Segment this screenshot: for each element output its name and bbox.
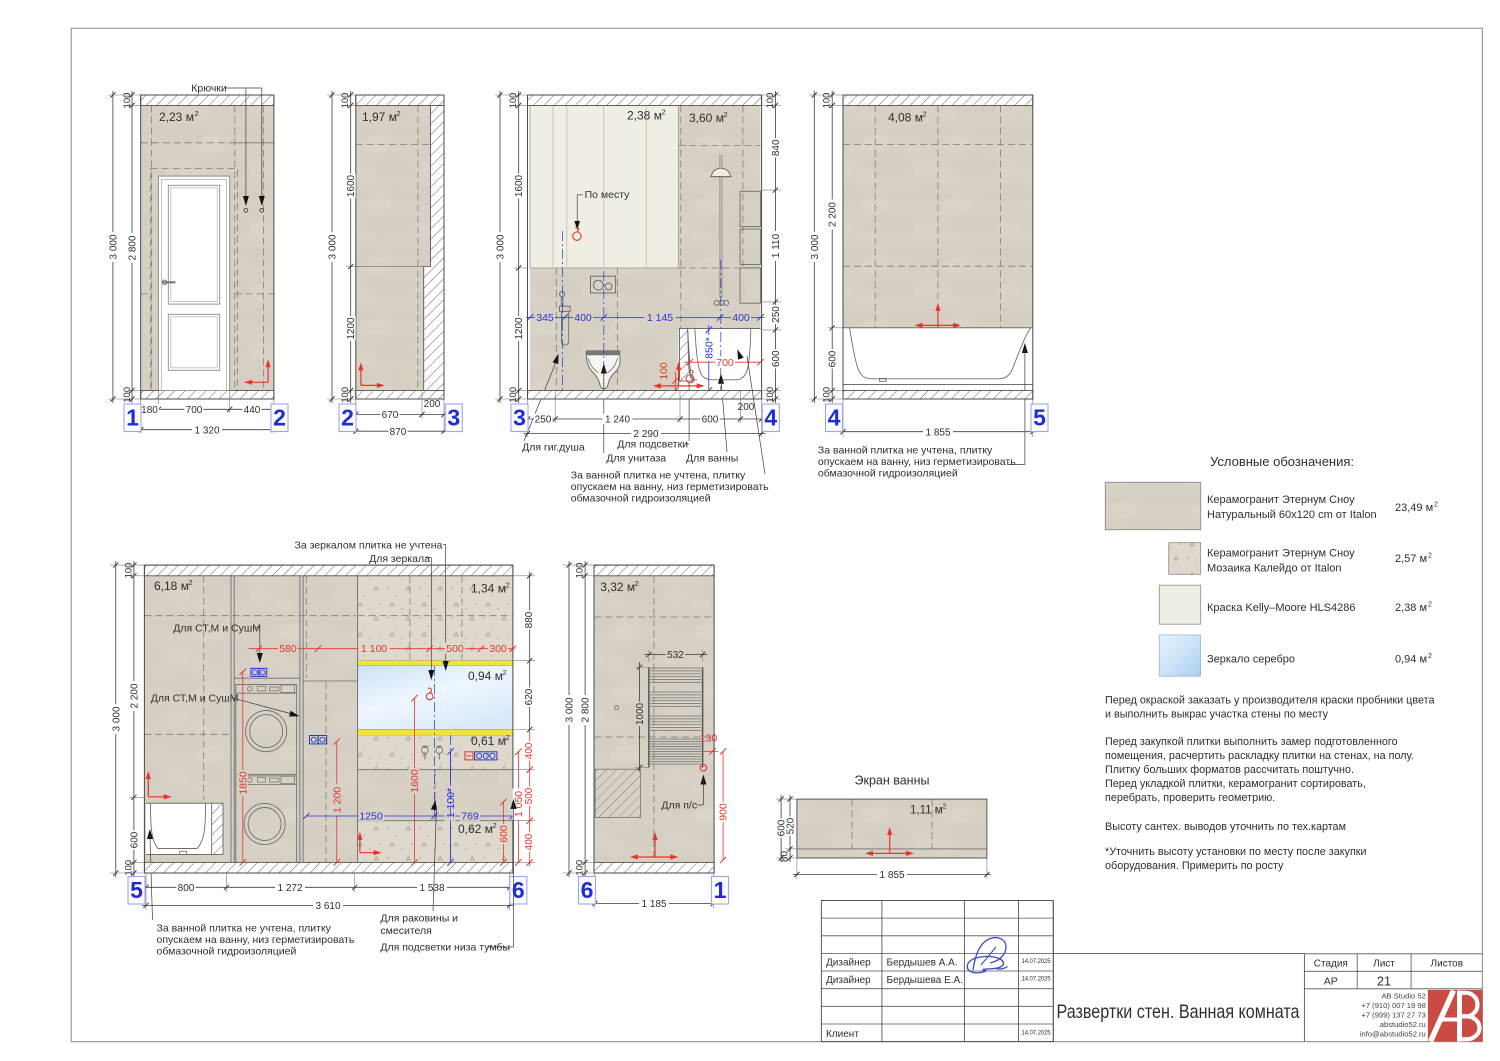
svg-text:1 272: 1 272	[277, 883, 302, 894]
svg-text:Мозаика Калейдо от Italon: Мозаика Калейдо от Italon	[1207, 563, 1342, 575]
svg-text:2 200: 2 200	[129, 683, 140, 708]
svg-text:За ванной плитка не учтена, п: За ванной плитка не учтена, плитку	[571, 470, 746, 482]
svg-text:840: 840	[771, 139, 782, 156]
svg-text:400: 400	[524, 833, 535, 850]
svg-text:перебрать, проверить геометрию: перебрать, проверить геометрию.	[1105, 792, 1275, 804]
svg-text:1600: 1600	[514, 174, 525, 197]
svg-text:0,62 м: 0,62 м	[458, 822, 493, 836]
svg-text:2: 2	[506, 733, 510, 742]
svg-text:2,23 м: 2,23 м	[159, 110, 194, 124]
svg-text:3,32 м: 3,32 м	[600, 580, 635, 594]
svg-text:1 240: 1 240	[605, 415, 630, 426]
svg-text:2: 2	[503, 668, 507, 677]
svg-text:Высоту сантех. выводов уточнит: Высоту сантех. выводов уточнить по тех.к…	[1105, 821, 1346, 833]
svg-text:0,61 м: 0,61 м	[471, 734, 506, 748]
svg-text:2: 2	[1428, 553, 1432, 560]
svg-text:580: 580	[279, 643, 297, 655]
svg-text:440: 440	[244, 405, 261, 416]
svg-text:1,11 м: 1,11 м	[910, 805, 943, 817]
svg-text:Дизайнер: Дизайнер	[826, 958, 871, 969]
svg-text:100: 100	[340, 387, 351, 403]
svg-text:100: 100	[822, 93, 833, 109]
svg-text:AB Studio 52: AB Studio 52	[1381, 992, 1425, 1001]
svg-text:3: 3	[513, 404, 526, 430]
svg-text:520: 520	[786, 817, 797, 834]
svg-text:345: 345	[536, 312, 554, 324]
svg-text:Для подсветки низа тумбы: Для подсветки низа тумбы	[380, 942, 510, 954]
svg-text:1600: 1600	[409, 769, 421, 793]
svg-text:2: 2	[635, 579, 639, 588]
svg-text:Клиент: Клиент	[826, 1029, 859, 1040]
svg-text:14.07.2025: 14.07.2025	[1021, 1030, 1051, 1036]
svg-text:23,49 м: 23,49 м	[1395, 502, 1433, 514]
svg-text:Для унитаза: Для унитаза	[606, 453, 666, 465]
svg-text:Зеркало серебро: Зеркало серебро	[1207, 654, 1295, 666]
svg-text:Краска Kelly–Moore HLS4286: Краска Kelly–Moore HLS4286	[1207, 602, 1355, 614]
svg-text:600: 600	[828, 350, 839, 367]
svg-text:300: 300	[489, 643, 507, 655]
svg-text:600: 600	[771, 350, 782, 367]
svg-text:Для п/с: Для п/с	[661, 800, 697, 812]
svg-text:2: 2	[397, 109, 401, 118]
svg-text:700: 700	[716, 357, 734, 369]
svg-text:Для раковины и: Для раковины и	[380, 913, 458, 925]
svg-text:2: 2	[724, 110, 728, 119]
svg-text:14.07.2025: 14.07.2025	[1021, 977, 1051, 983]
svg-text:600: 600	[129, 831, 140, 848]
svg-text:6: 6	[581, 877, 594, 903]
svg-text:2 800: 2 800	[581, 697, 592, 722]
svg-text:880: 880	[524, 611, 535, 628]
svg-text:Бердышева Е.А.: Бердышева Е.А.	[887, 975, 964, 986]
svg-text:400: 400	[574, 312, 592, 324]
svg-text:130: 130	[700, 733, 718, 745]
svg-text:обмазочной гидроизоляцией: обмазочной гидроизоляцией	[157, 946, 297, 958]
svg-text:1200: 1200	[514, 317, 525, 340]
svg-text:2,38 м: 2,38 м	[627, 109, 662, 123]
svg-text:помещения, расчертить раскладк: помещения, расчертить раскладку плитки н…	[1105, 750, 1414, 762]
svg-text:100: 100	[508, 93, 519, 109]
svg-text:Перед укладкой плитки, керамог: Перед укладкой плитки, керамогранит сорт…	[1105, 778, 1366, 790]
svg-text:870: 870	[390, 427, 407, 438]
svg-text:Керамогранит Этернум Сноу: Керамогранит Этернум Сноу	[1207, 548, 1355, 560]
svg-text:3 000: 3 000	[565, 697, 576, 722]
svg-text:2: 2	[195, 109, 199, 118]
svg-text:3 000: 3 000	[328, 234, 339, 259]
svg-text:Для ванны: Для ванны	[686, 453, 738, 465]
svg-text:100: 100	[340, 93, 351, 109]
svg-text:опускаем на ванну, низ гермети: опускаем на ванну, низ герметизировать	[157, 934, 355, 946]
svg-text:АР: АР	[1324, 976, 1338, 988]
svg-text:опускаем на ванну, низ гермети: опускаем на ванну, низ герметизировать	[571, 481, 769, 493]
svg-text:3 000: 3 000	[111, 706, 122, 731]
svg-text:Бердышев А.А.: Бердышев А.А.	[887, 958, 958, 969]
svg-text:Лист: Лист	[1373, 959, 1395, 970]
svg-text:700: 700	[186, 405, 203, 416]
svg-text:2,38 м: 2,38 м	[1395, 602, 1427, 614]
svg-text:Стадия: Стадия	[1314, 959, 1348, 970]
svg-text:3 000: 3 000	[496, 234, 507, 259]
svg-text:5: 5	[1033, 404, 1046, 430]
svg-text:2 200: 2 200	[828, 202, 839, 227]
svg-text:Экран ванны: Экран ванны	[855, 774, 930, 788]
svg-text:1 185: 1 185	[641, 899, 666, 910]
svg-text:Для зеркала: Для зеркала	[369, 553, 430, 565]
svg-text:3 610: 3 610	[315, 901, 340, 912]
svg-text:Перед закупкой плитки выполнит: Перед закупкой плитки выполнить замер по…	[1105, 736, 1398, 748]
svg-text:Плитку больших форматов рассчи: Плитку больших форматов рассчитать пошту…	[1105, 764, 1354, 776]
svg-text:2: 2	[1428, 602, 1432, 609]
svg-text:6,18 м: 6,18 м	[154, 579, 189, 593]
svg-text:80: 80	[780, 851, 791, 863]
svg-text:обмазочной гидроизоляцией: обмазочной гидроизоляцией	[571, 493, 711, 505]
svg-text:250: 250	[771, 306, 782, 323]
svg-text:400: 400	[732, 312, 750, 324]
svg-text:5: 5	[130, 877, 143, 903]
svg-text:14.07.2025: 14.07.2025	[1021, 959, 1051, 965]
svg-text:21: 21	[1377, 975, 1391, 989]
svg-text:опускаем на ванну, низ гермети: опускаем на ванну, низ герметизировать	[818, 456, 1016, 468]
svg-text:+7 (999) 137 27 73: +7 (999) 137 27 73	[1361, 1011, 1425, 1020]
svg-text:Для гиг.душа: Для гиг.душа	[522, 442, 585, 454]
svg-text:900: 900	[718, 803, 730, 821]
svg-text:Для СТ,М и СушМ: Для СТ,М и СушМ	[173, 623, 261, 635]
svg-text:смесителя: смесителя	[380, 925, 431, 937]
svg-text:2: 2	[341, 404, 354, 430]
svg-text:2 800: 2 800	[128, 235, 139, 260]
svg-text:2,57 м: 2,57 м	[1395, 553, 1427, 565]
svg-text:1200: 1200	[346, 317, 357, 340]
svg-text:1 538: 1 538	[419, 883, 444, 894]
svg-text:1: 1	[714, 877, 727, 903]
svg-text:За ванной плитка не учтена, п: За ванной плитка не учтена, плитку	[157, 923, 332, 935]
svg-text:4: 4	[828, 404, 841, 430]
svg-text:Крючки: Крючки	[191, 83, 227, 95]
svg-text:1 200: 1 200	[331, 787, 343, 813]
svg-text:info@abstudio52.ru: info@abstudio52.ru	[1360, 1030, 1426, 1039]
svg-text:500: 500	[446, 643, 464, 655]
svg-text:и выполнить выкрас участка сте: и выполнить выкрас участка стены по мест…	[1105, 709, 1329, 721]
svg-text:оборудования. Примерить по рос: оборудования. Примерить по росту	[1105, 860, 1284, 872]
svg-text:1 855: 1 855	[925, 427, 950, 438]
svg-text:0,94 м: 0,94 м	[1395, 654, 1427, 666]
svg-text:2: 2	[1428, 653, 1432, 660]
svg-text:1 100: 1 100	[361, 643, 387, 655]
svg-text:Развертки стен. Ванная комната: Развертки стен. Ванная комната	[1057, 1001, 1300, 1023]
svg-text:1,34 м: 1,34 м	[471, 582, 506, 596]
svg-text:100: 100	[575, 860, 586, 876]
svg-text:100: 100	[575, 563, 586, 579]
svg-text:4: 4	[764, 404, 777, 430]
svg-text:За ванной плитка не учтена, п: За ванной плитка не учтена, плитку	[818, 445, 993, 457]
svg-text:600: 600	[702, 415, 719, 426]
svg-text:2: 2	[189, 578, 193, 587]
svg-text:1000: 1000	[635, 702, 646, 725]
svg-text:Керамогранит Этернум Сноу: Керамогранит Этернум Сноу	[1207, 494, 1355, 506]
svg-text:100: 100	[658, 362, 670, 380]
svg-text:620: 620	[524, 688, 535, 705]
svg-text:1,97 м: 1,97 м	[362, 110, 397, 124]
svg-text:По месту: По месту	[585, 189, 631, 201]
svg-text:*Уточнить высоту установки по: *Уточнить высоту установки по месту посл…	[1105, 846, 1367, 858]
svg-text:200: 200	[738, 402, 755, 413]
svg-text:250: 250	[535, 415, 552, 426]
svg-text:850*: 850*	[703, 337, 715, 359]
svg-text:500: 500	[524, 787, 535, 804]
svg-text:Листов: Листов	[1431, 959, 1464, 970]
svg-text:За зеркалом плитка не учтена: За зеркалом плитка не учтена	[295, 540, 443, 552]
svg-text:769: 769	[461, 810, 479, 822]
svg-text:100: 100	[123, 860, 134, 876]
svg-text:2: 2	[1434, 502, 1438, 509]
svg-text:2: 2	[923, 110, 927, 119]
svg-text:Для подсветки: Для подсветки	[617, 439, 688, 451]
svg-text:100: 100	[765, 387, 776, 403]
svg-text:1 855: 1 855	[879, 870, 904, 881]
svg-text:1600: 1600	[346, 174, 357, 197]
svg-text:100: 100	[508, 387, 519, 403]
svg-text:180: 180	[141, 405, 158, 416]
svg-text:1 320: 1 320	[194, 425, 219, 436]
svg-text:1 145: 1 145	[647, 312, 673, 324]
svg-text:1250: 1250	[359, 810, 383, 822]
svg-text:abstudio52.ru: abstudio52.ru	[1380, 1020, 1426, 1029]
svg-text:670: 670	[382, 410, 399, 421]
svg-text:обмазочной гидроизоляцией: обмазочной гидроизоляцией	[818, 468, 958, 480]
svg-text:2: 2	[662, 108, 666, 117]
svg-text:532: 532	[667, 650, 684, 661]
svg-text:100: 100	[122, 93, 133, 109]
svg-text:3 000: 3 000	[810, 234, 821, 259]
svg-text:1 110: 1 110	[771, 233, 782, 258]
svg-text:100: 100	[122, 387, 133, 403]
svg-text:200: 200	[424, 399, 441, 410]
svg-text:3: 3	[447, 404, 460, 430]
svg-text:3 000: 3 000	[108, 234, 119, 259]
svg-text:100: 100	[822, 387, 833, 403]
svg-text:2: 2	[273, 404, 286, 430]
svg-text:Условные обозначения:: Условные обозначения:	[1210, 454, 1354, 469]
svg-text:Для СТ,М и СушМ: Для СТ,М и СушМ	[151, 693, 239, 705]
svg-text:100: 100	[765, 93, 776, 109]
svg-text:3,60 м: 3,60 м	[689, 111, 724, 125]
svg-text:Натуральный 60х120 cm от Italo: Натуральный 60х120 cm от Italon	[1207, 509, 1377, 521]
svg-text:0,94 м: 0,94 м	[468, 669, 503, 683]
svg-text:2: 2	[506, 581, 510, 590]
svg-text:100: 100	[123, 563, 134, 579]
svg-text:2: 2	[943, 804, 947, 811]
svg-text:1 100*: 1 100*	[445, 788, 457, 818]
svg-text:4,08 м: 4,08 м	[888, 111, 923, 125]
svg-text:600: 600	[498, 825, 510, 843]
svg-text:+7 (910) 007 19 98: +7 (910) 007 19 98	[1361, 1001, 1425, 1010]
svg-text:1850: 1850	[237, 771, 249, 795]
svg-text:1: 1	[126, 404, 139, 430]
svg-text:2: 2	[493, 821, 497, 830]
svg-text:Перед окраской заказать у прои: Перед окраской заказать у производителя …	[1105, 695, 1434, 707]
svg-text:Дизайнер: Дизайнер	[826, 975, 871, 986]
svg-text:800: 800	[178, 883, 195, 894]
svg-text:400: 400	[524, 742, 535, 759]
